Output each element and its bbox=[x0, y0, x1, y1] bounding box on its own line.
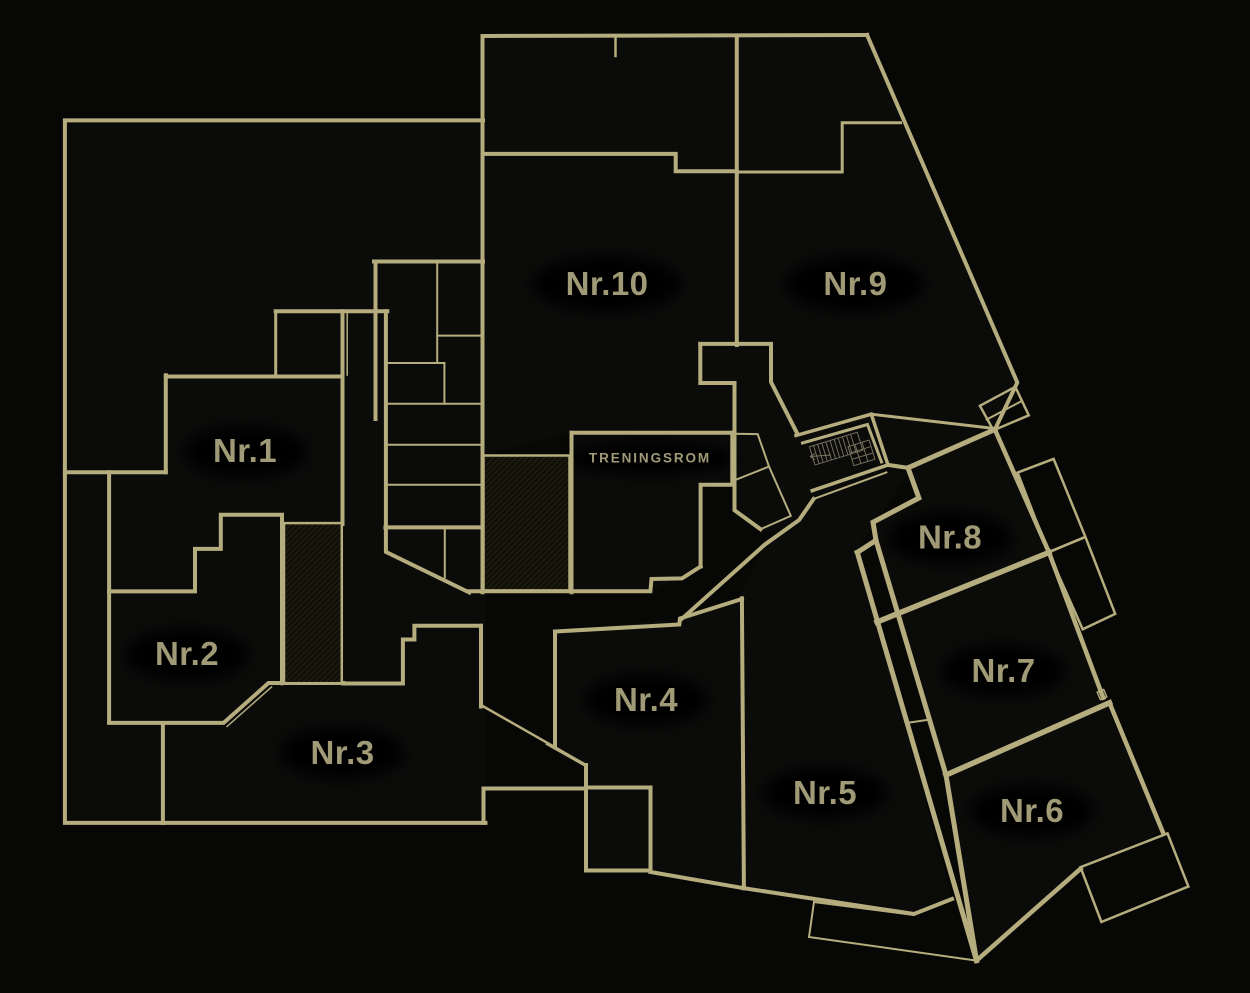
svg-text:Nr.6: Nr.6 bbox=[1000, 792, 1064, 829]
svg-text:Nr.1: Nr.1 bbox=[213, 432, 277, 469]
svg-text:Nr.5: Nr.5 bbox=[793, 774, 857, 811]
svg-text:Nr.10: Nr.10 bbox=[566, 265, 649, 302]
svg-text:TRENINGSROM: TRENINGSROM bbox=[589, 451, 711, 466]
svg-text:Nr.8: Nr.8 bbox=[918, 519, 982, 556]
svg-text:Nr.4: Nr.4 bbox=[614, 681, 678, 718]
svg-text:Nr.7: Nr.7 bbox=[972, 652, 1036, 689]
svg-text:Nr.2: Nr.2 bbox=[155, 635, 219, 672]
svg-text:Nr.3: Nr.3 bbox=[311, 734, 375, 771]
svg-text:Nr.9: Nr.9 bbox=[823, 265, 887, 302]
